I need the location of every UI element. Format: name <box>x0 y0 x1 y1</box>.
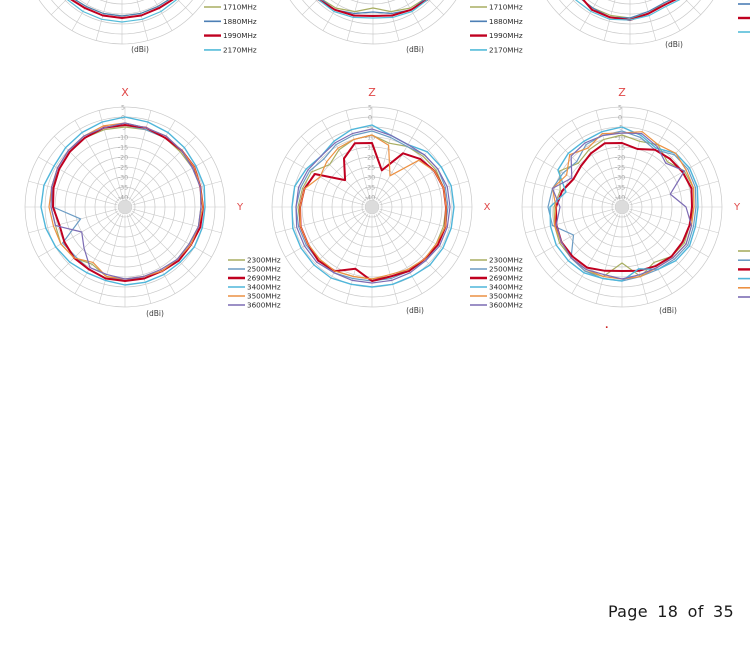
polar-spoke <box>380 181 469 205</box>
polar-spoke <box>301 213 366 278</box>
polar-spoke <box>374 215 398 304</box>
chart-legend: 2300MHz2500MHz2690MHz3400MHz3500MHz3600M… <box>738 247 750 302</box>
radial-tick-label: -40 <box>118 195 128 202</box>
polar-spoke <box>374 110 398 199</box>
legend-label: 2690MHz <box>489 274 523 283</box>
chart-legend: 1710MHz1880MHz1990MHz2170MHz <box>204 3 257 55</box>
polar-spoke <box>54 136 119 201</box>
stray-dot: . <box>605 321 608 331</box>
radial-tick-label: -40 <box>615 195 625 202</box>
polar-spoke <box>75 214 121 294</box>
polar-spoke <box>525 181 614 205</box>
polar-spoke <box>624 110 648 199</box>
radial-tick-label: 0 <box>618 115 622 122</box>
radial-tick-label: -25 <box>365 165 375 172</box>
polar-spoke <box>535 211 615 257</box>
legend-label: 1710MHz <box>223 3 257 12</box>
legend-label: 2500MHz <box>247 265 281 274</box>
dbi-unit-label: (dBi) <box>659 306 677 315</box>
radial-tick-label: -30 <box>118 175 128 182</box>
top-right-pattern: 50-5-10-15-20-25-30-35-40(dBi)1710MHz188… <box>530 0 750 49</box>
polar-spoke <box>630 181 719 205</box>
polar-center-disk <box>118 200 132 214</box>
polar-spoke <box>275 181 364 205</box>
radial-tick-label: -35 <box>615 185 625 192</box>
radial-tick-label: -35 <box>365 185 375 192</box>
legend-label: 2500MHz <box>489 265 523 274</box>
polar-spoke <box>632 0 656 41</box>
radial-tick-label: -30 <box>615 175 625 182</box>
legend-label: 2170MHz <box>489 46 523 55</box>
polar-spoke <box>275 209 364 233</box>
antenna-pattern-charts: 50-5-10-15-20-25-30-35-40(dBi)1710MHz188… <box>0 0 750 650</box>
polar-spoke <box>380 209 469 233</box>
legend-label: 2300MHz <box>247 256 281 265</box>
radial-tick-label: -25 <box>118 165 128 172</box>
radial-tick-label: -10 <box>118 135 128 142</box>
legend-label: 3500MHz <box>247 292 281 301</box>
legend-label: 2690MHz <box>247 274 281 283</box>
chart-title: Z <box>368 86 376 99</box>
polar-spoke <box>375 0 399 41</box>
radial-tick-label: -30 <box>365 175 375 182</box>
polar-spoke <box>630 209 719 233</box>
chart-legend: 1710MHz1880MHz1990MHz2170MHz <box>738 0 750 37</box>
legend-label: 1880MHz <box>489 17 523 26</box>
legend-label: 3400MHz <box>489 283 523 292</box>
polar-spoke <box>129 214 175 294</box>
chart-legend: 2300MHz2500MHz2690MHz3400MHz3500MHz3600M… <box>470 256 523 310</box>
radial-tick-label: -15 <box>615 145 625 152</box>
polar-spoke <box>572 120 618 200</box>
side-axis-label: Y <box>236 202 244 213</box>
radial-tick-label: 5 <box>618 105 622 112</box>
radial-tick-label: -35 <box>118 185 128 192</box>
radial-tick-label: -25 <box>615 165 625 172</box>
radial-tick-label: -15 <box>118 145 128 152</box>
legend-label: 3600MHz <box>247 301 281 310</box>
chart-title: X <box>121 86 129 99</box>
polar-spoke <box>346 215 370 304</box>
polar-spoke <box>624 215 648 304</box>
polar-spoke <box>133 181 222 205</box>
x-plane-pattern: 50-5-10-15-20-25-30-35-40XY(dBi)2300MHz2… <box>25 86 281 318</box>
dbi-unit-label: (dBi) <box>406 45 424 54</box>
top-left-pattern: 50-5-10-15-20-25-30-35-40(dBi)1710MHz188… <box>22 0 257 55</box>
radial-tick-label: 5 <box>368 105 372 112</box>
polar-spoke <box>132 157 212 203</box>
side-axis-label: Y <box>733 202 741 213</box>
chart-legend: 2300MHz2500MHz2690MHz3400MHz3500MHz3600M… <box>228 256 281 310</box>
polar-spoke <box>131 136 196 201</box>
radial-tick-label: -20 <box>118 155 128 162</box>
legend-label: 3600MHz <box>489 301 523 310</box>
polar-center-disk <box>365 200 379 214</box>
side-axis-label: X <box>484 202 491 213</box>
dbi-unit-label: (dBi) <box>131 45 149 54</box>
z-plane-x-pattern: 50-5-10-15-20-25-30-35-40ZX(dBi)2300MHz2… <box>272 86 523 315</box>
legend-label: 2170MHz <box>223 46 257 55</box>
radial-tick-label: -20 <box>615 155 625 162</box>
z-plane-y-pattern: 50-5-10-15-20-25-30-35-40ZY(dBi)2300MHz2… <box>522 86 750 315</box>
radial-tick-label: 0 <box>368 115 372 122</box>
top-middle-pattern: 50-5-10-15-20-25-30-35-40(dBi)1710MHz188… <box>273 0 523 55</box>
radial-tick-label: 5 <box>121 105 125 112</box>
polar-spoke <box>525 209 614 233</box>
radial-tick-label: -20 <box>365 155 375 162</box>
legend-label: 1710MHz <box>489 3 523 12</box>
legend-label: 3500MHz <box>489 292 523 301</box>
dbi-unit-label: (dBi) <box>146 309 164 318</box>
legend-label: 1880MHz <box>223 17 257 26</box>
polar-spoke <box>301 136 366 201</box>
polar-spoke <box>127 215 151 304</box>
polar-spoke <box>99 215 123 304</box>
dbi-unit-label: (dBi) <box>406 306 424 315</box>
page-number: Page 18 of 35 <box>608 602 734 621</box>
legend-label: 1990MHz <box>489 31 523 40</box>
polar-spoke <box>572 214 618 294</box>
polar-center-disk <box>615 200 629 214</box>
radial-tick-label: -40 <box>365 195 375 202</box>
legend-label: 1990MHz <box>223 31 257 40</box>
polar-spoke <box>133 209 222 233</box>
polar-spoke <box>596 215 620 304</box>
dbi-unit-label: (dBi) <box>665 40 683 49</box>
polar-spoke <box>626 214 672 294</box>
legend-label: 3400MHz <box>247 283 281 292</box>
polar-spoke <box>347 0 371 41</box>
chart-title: Z <box>618 86 626 99</box>
legend-label: 2300MHz <box>489 256 523 265</box>
chart-legend: 1710MHz1880MHz1990MHz2170MHz <box>470 3 523 55</box>
